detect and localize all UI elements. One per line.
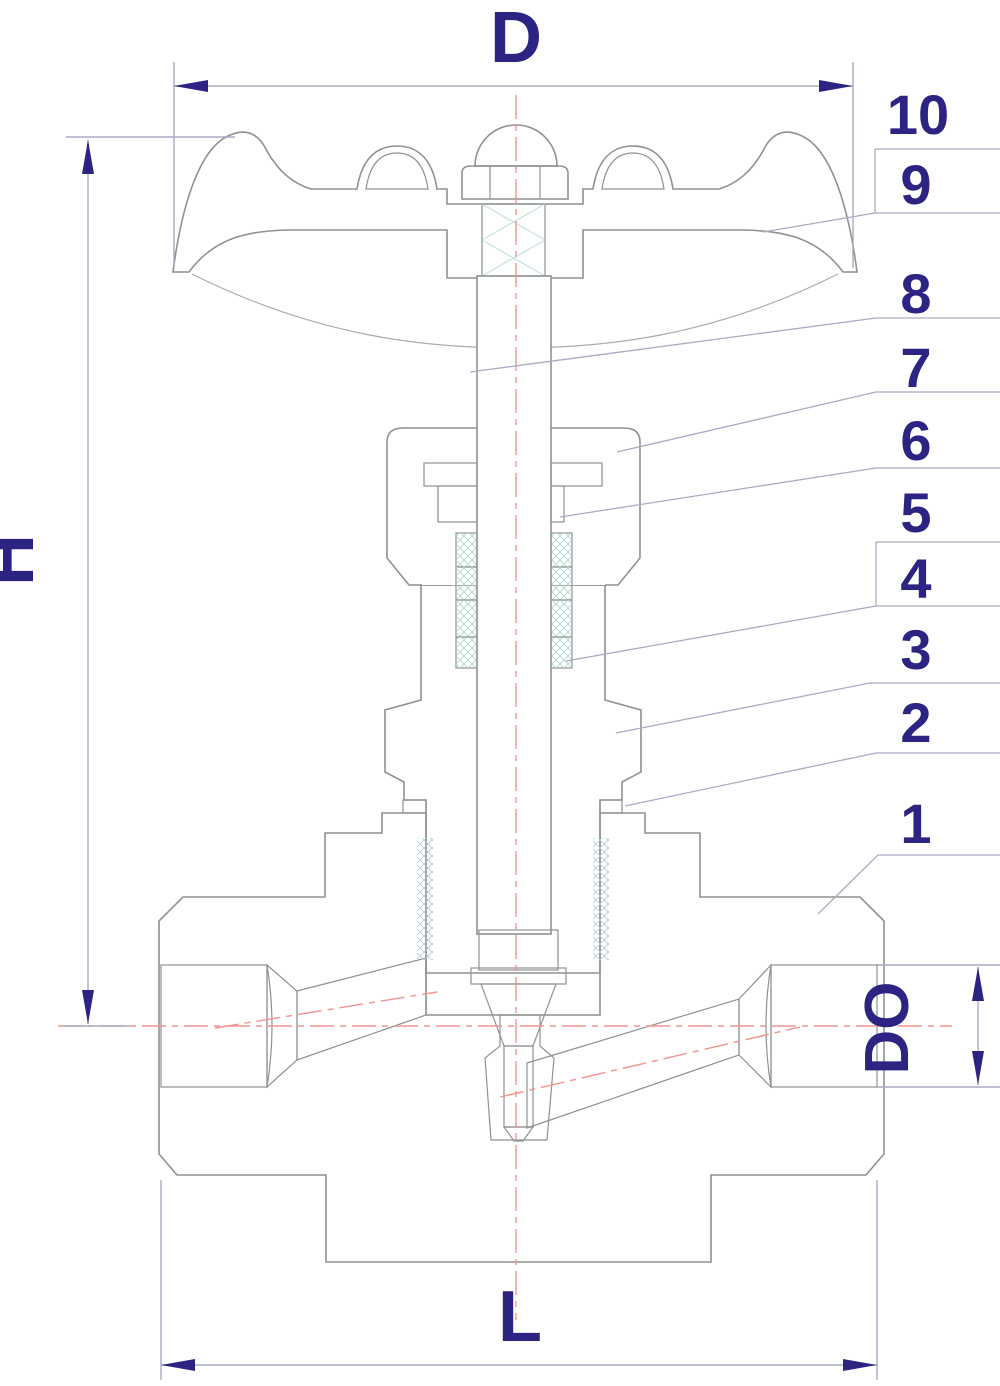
dimension-L: L [161,1180,877,1380]
callout-9: 9 [900,153,931,216]
stem [471,276,566,1141]
inlet-passage [297,958,426,1060]
spoke-hole-right [602,153,664,189]
spoke-hole-left [366,153,428,189]
dimension-H-label: H [0,534,49,586]
callout-2: 2 [900,691,931,754]
callout-7: 7 [900,336,931,399]
seat-bore [485,1015,554,1140]
callout-10: 10 [887,83,949,146]
dimension-D-label: D [490,0,542,78]
dimension-L-label: L [498,1277,542,1357]
cap-nut-hex [462,166,568,199]
bonnet-gasket-right [600,800,622,813]
dimension-DO: DO [853,965,1000,1087]
callout-numbers: 10 9 8 7 6 5 4 3 2 1 [887,83,949,855]
outlet-passage-centerline [500,1027,800,1097]
bonnet-gasket-left [403,800,426,813]
callout-6: 6 [900,409,931,472]
dimension-H: H [0,137,235,1026]
needle-shaft [504,1046,533,1127]
packing-column-left [456,533,477,668]
cap-nut [462,125,568,199]
callout-8: 8 [900,262,931,325]
dimension-D: D [174,0,853,268]
needle-tip [504,1127,533,1141]
outlet-passage [527,999,739,1128]
callout-3: 3 [900,618,931,681]
dimension-DO-label: DO [853,982,922,1075]
hub-thread [482,204,545,276]
drawing-canvas: D H L DO [0,0,1000,1386]
callout-5: 5 [900,481,931,544]
packing-column-right [551,533,572,668]
valve-technical-drawing: D H L DO [0,0,1000,1386]
callout-4: 4 [900,547,931,610]
callout-1: 1 [900,792,931,855]
stem-head [479,930,558,970]
